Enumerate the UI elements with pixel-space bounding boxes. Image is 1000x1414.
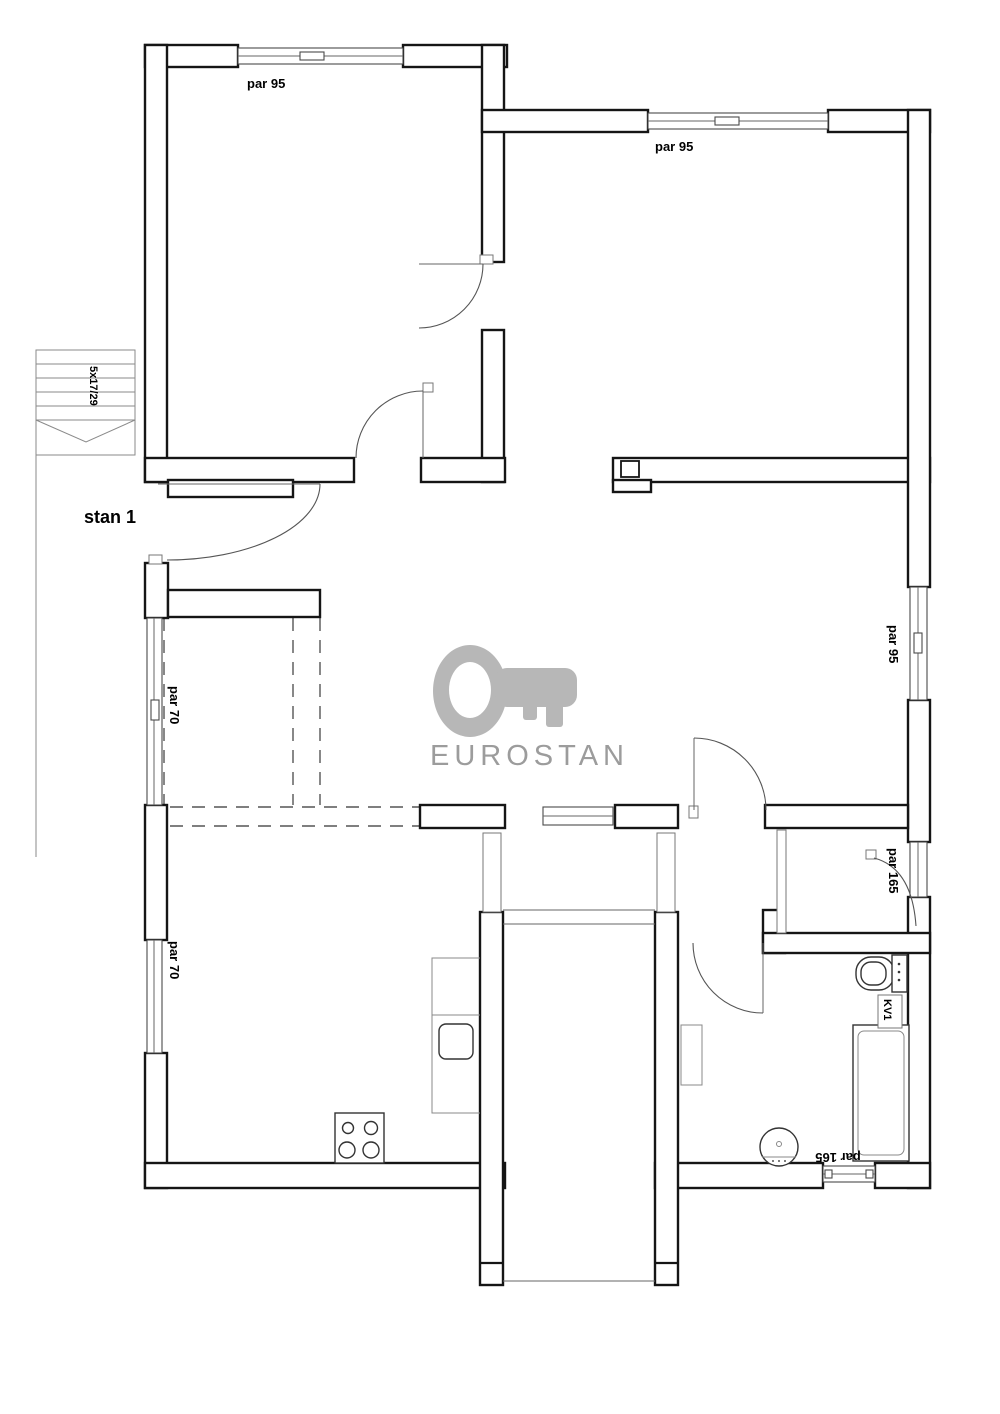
wall-roomB-bottom — [613, 458, 930, 482]
kitchen-sink — [439, 1024, 473, 1059]
window-hall-interior — [543, 807, 613, 825]
floor-plan-drawing: EUROSTAN 5x17/29 stan 1 — [0, 0, 1000, 1414]
porch-corridor — [503, 910, 655, 1281]
window-label-left-upper: par 70 — [167, 686, 182, 724]
door-roomA-roomB — [419, 255, 493, 328]
wall-left-upper — [145, 45, 167, 482]
washbasin — [760, 1128, 798, 1166]
kitchen — [335, 958, 702, 1163]
wall-bottom-left — [145, 1163, 505, 1188]
window-label-right-mid: par 165 — [886, 848, 901, 894]
window-top-right — [648, 113, 828, 129]
stove — [335, 1113, 384, 1163]
window-label-top-right: par 95 — [655, 139, 693, 154]
key-icon — [433, 645, 577, 737]
wall-roomB-bottom-step — [613, 480, 651, 492]
window-right-mid — [910, 842, 927, 897]
toilet — [856, 955, 907, 992]
door-roomA-hall — [356, 383, 433, 458]
watermark-text: EUROSTAN — [430, 740, 629, 772]
floor-plan: EUROSTAN 5x17/29 stan 1 — [0, 0, 1000, 1414]
wall-bottom-right2 — [875, 1163, 930, 1188]
window-label-right-upper: par 95 — [886, 625, 901, 663]
wall-roomA-bottom-right — [421, 458, 505, 482]
wall-roomA-bottom-step — [168, 480, 293, 497]
wall-right-pier2 — [908, 700, 930, 842]
window-left-lower — [147, 940, 162, 1053]
opening-lobby — [657, 833, 675, 912]
door-lobby-bathroom — [693, 943, 763, 1013]
wall-corridor-right — [655, 912, 678, 1285]
wall-hall-a — [420, 805, 505, 828]
window-bottom — [823, 1166, 875, 1182]
window-top-left — [238, 48, 403, 64]
wall-hall-b — [615, 805, 678, 828]
opening-kitchen — [483, 833, 501, 912]
wall-column — [621, 461, 639, 477]
wall-left-pier1 — [145, 805, 167, 940]
wc-partition — [777, 830, 786, 933]
watermark: EUROSTAN — [430, 645, 629, 772]
bathtub: KV1 — [853, 995, 909, 1161]
stairs-direction-arrow — [36, 420, 135, 442]
window-label-bottom: par 165 — [815, 1150, 861, 1165]
stairs: 5x17/29 — [36, 350, 135, 857]
window-left-upper — [147, 618, 162, 805]
wall-entrance-block — [145, 563, 168, 618]
wall-bath-horizontal — [763, 933, 930, 953]
wall-right-pier1 — [908, 110, 930, 587]
wardrobe — [681, 1025, 702, 1085]
wall-corridor-left — [480, 912, 503, 1285]
wall-closet — [168, 590, 320, 617]
wall-roomA-bottom-left — [145, 458, 354, 482]
wall-center-vertical-upper — [482, 45, 504, 262]
window-label-top-left: par 95 — [247, 76, 285, 91]
window-right-upper — [910, 587, 927, 700]
labels: par 95 par 95 par 95 par 165 par 70 par … — [167, 76, 901, 1165]
dashed-walls — [164, 618, 420, 826]
bathroom: KV1 — [760, 955, 909, 1166]
doors — [149, 255, 916, 1013]
walls — [145, 45, 930, 1285]
window-label-left-lower: par 70 — [167, 941, 182, 979]
wall-bottom-right1 — [655, 1163, 823, 1188]
door-hall-lobby — [689, 738, 766, 818]
unit-label: stan 1 — [84, 507, 136, 527]
wall-top-right-pier — [482, 110, 648, 132]
bathtub-label: KV1 — [881, 999, 893, 1020]
stairs-label: 5x17/29 — [87, 366, 99, 406]
wall-hall-c — [765, 805, 908, 828]
